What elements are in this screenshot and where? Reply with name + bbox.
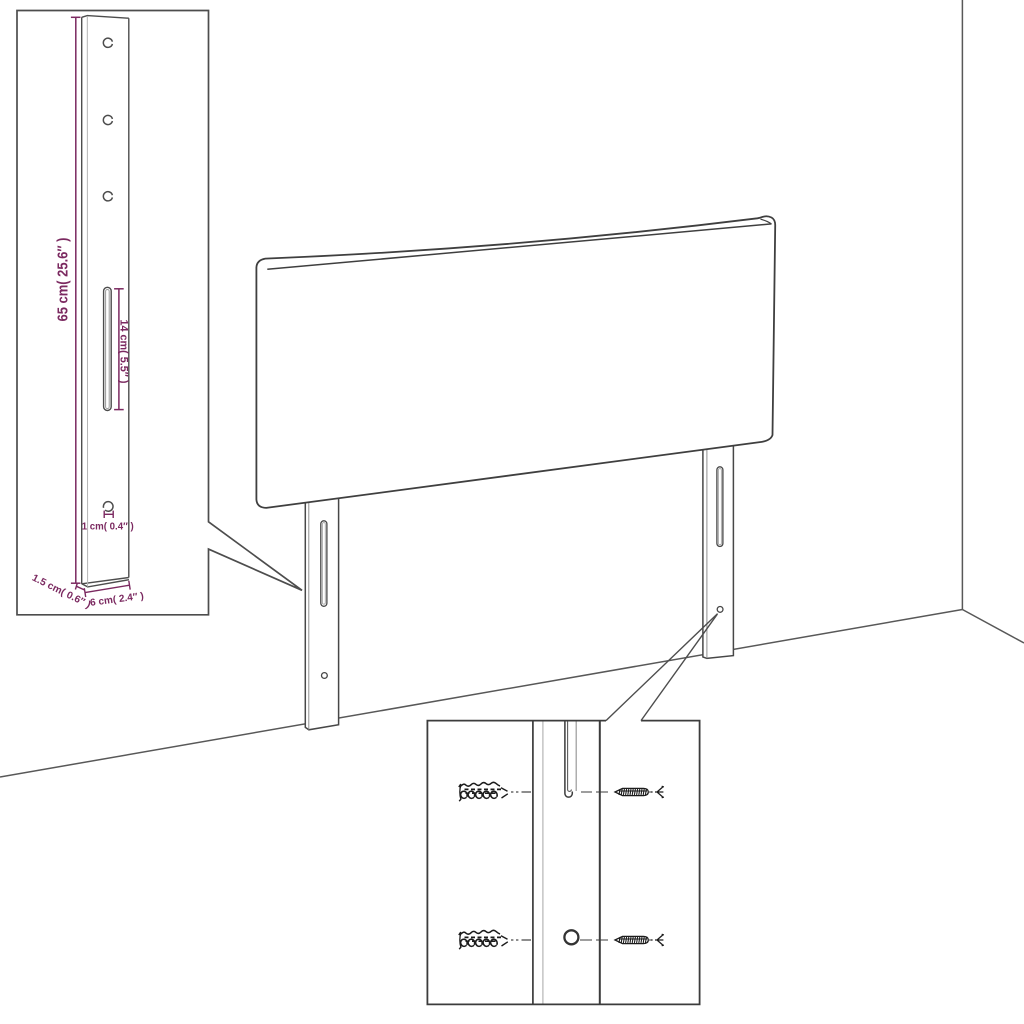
svg-text:65 cm( 25.6′′ ): 65 cm( 25.6′′ ) [56,237,72,321]
svg-text:14 cm( 5.5′′ ): 14 cm( 5.5′′ ) [117,320,129,384]
svg-text:1 cm( 0.4′′ ): 1 cm( 0.4′′ ) [82,521,134,533]
